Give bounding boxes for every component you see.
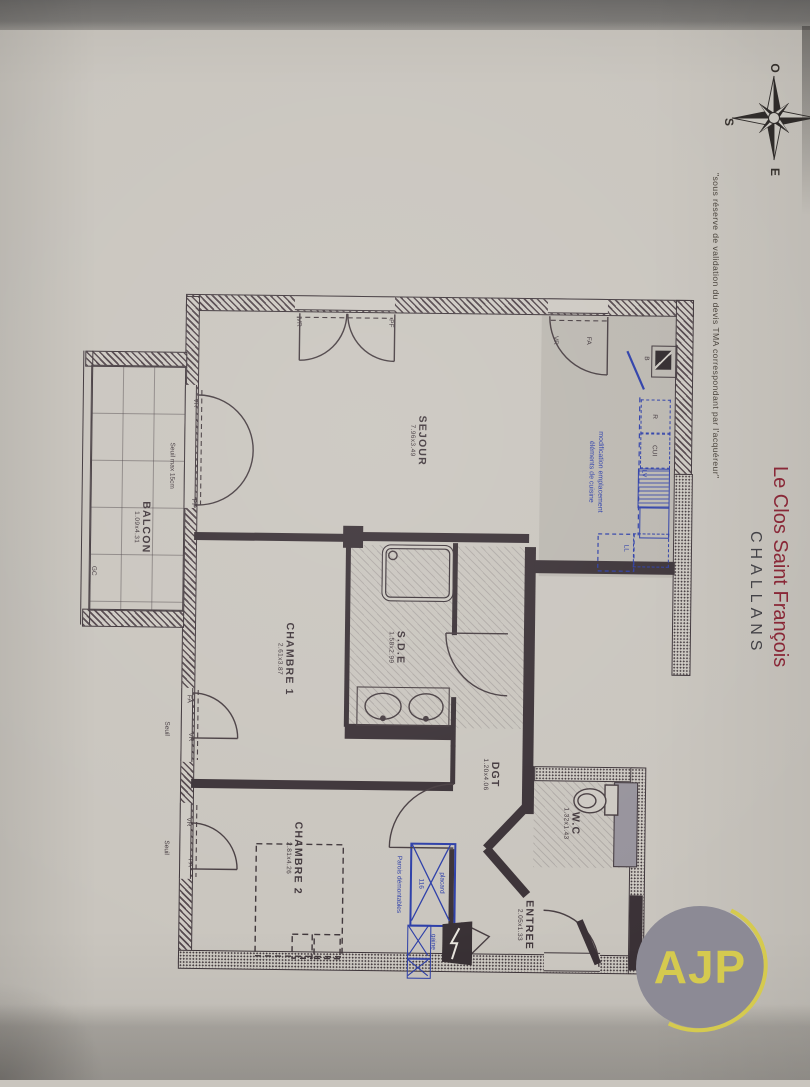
lightning-bolt-icon bbox=[442, 921, 473, 965]
corner-shadow bbox=[0, 930, 160, 1080]
electrical-panel bbox=[442, 921, 473, 965]
compass-east-label: E bbox=[768, 168, 782, 176]
compass-south-label: S bbox=[722, 118, 736, 126]
shower-tray bbox=[381, 544, 454, 602]
ajp-logo: AJP bbox=[636, 906, 764, 1028]
validation-disclaimer: "sous réserve de validation du devis TMA… bbox=[711, 173, 721, 478]
project-title: Le Clos Saint François bbox=[768, 466, 791, 667]
project-city: CHALLANS bbox=[746, 531, 764, 655]
paper-edge-shadow bbox=[802, 26, 810, 216]
photo-background-top bbox=[0, 0, 810, 30]
compass-rose: O S E bbox=[718, 60, 810, 178]
ajp-logo-text: AJP bbox=[654, 940, 746, 994]
compass-west-label: O bbox=[768, 63, 782, 72]
